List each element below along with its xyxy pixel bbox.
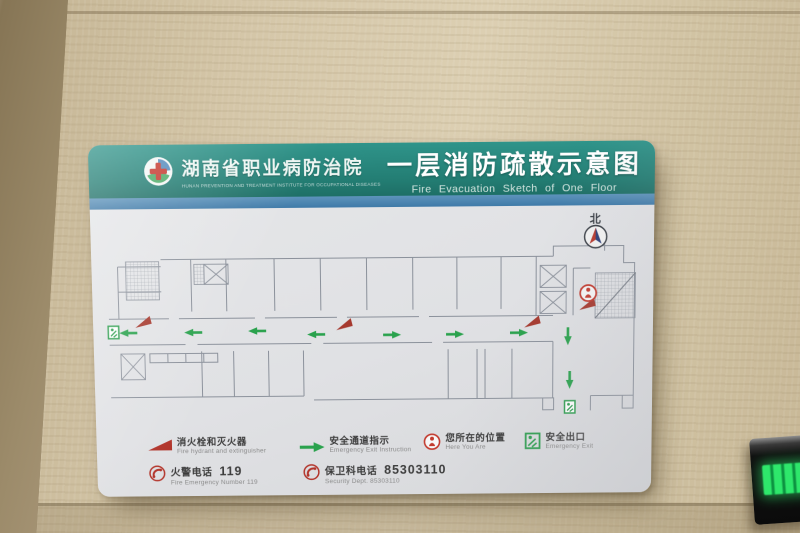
- phone-name: 保卫科电话: [325, 466, 378, 477]
- phone-icon: [149, 465, 166, 487]
- emergency-exit-icon: [525, 432, 541, 454]
- legend-label-cn: 安全通道指示: [329, 436, 411, 448]
- org-block: 湖南省职业病防治院 HUNAN PREVENTION AND TREATMENT…: [143, 153, 381, 189]
- evacuation-sign-board: 湖南省职业病防治院 HUNAN PREVENTION AND TREATMENT…: [88, 140, 655, 496]
- evacuation-arrow-icon: [564, 327, 572, 345]
- phone-label-en: Security Dept. 85303110: [325, 477, 447, 486]
- evacuation-arrow-icon: [383, 331, 401, 339]
- legend-label-en: Emergency Exit: [545, 443, 593, 452]
- exit-route-arrow-icon: [299, 439, 325, 457]
- evacuation-arrow-icon: [510, 329, 528, 337]
- you-are-here-icon: [424, 433, 441, 455]
- wall-corner-column: [0, 0, 70, 533]
- fire-hydrant-marker-icon: [334, 318, 352, 330]
- phone-name: 火警电话: [171, 468, 213, 479]
- legend-label-en: Fire hydrant and extinguisher: [177, 448, 266, 457]
- phone-icon: [303, 464, 320, 486]
- legend-item-security-phone: 保卫科电话85303110 Security Dept. 85303110: [303, 463, 446, 487]
- phone-label-en: Fire Emergency Number 119: [171, 479, 258, 488]
- north-label: 北: [590, 211, 601, 225]
- org-name-cn: 湖南省职业病防治院: [181, 153, 380, 181]
- emergency-exit-marker-icon: [108, 326, 119, 339]
- stairwell-hatch: [125, 258, 635, 323]
- evacuation-arrow-icon: [184, 329, 202, 337]
- legend-label-cn: 消火栓和灭火器: [177, 437, 266, 449]
- legend-item-hydrant: 消火栓和灭火器 Fire hydrant and extinguisher: [148, 437, 266, 457]
- legend-item-fire-phone: 火警电话119 Fire Emergency Number 119: [149, 464, 258, 488]
- wall-bottom-band: [0, 506, 800, 533]
- legend-item-exit: 安全出口 Emergency Exit: [525, 432, 594, 454]
- wall-tile-seam-top: [0, 11, 800, 14]
- phone-number: 85303110: [384, 463, 446, 477]
- evacuation-arrow-icon: [566, 371, 574, 389]
- legend-item-route: 安全通道指示 Emergency Exit Instruction: [299, 436, 412, 458]
- floor-plan-walls: [107, 240, 635, 414]
- north-compass-icon: 北: [585, 211, 607, 248]
- legend-label-en: Emergency Exit Instruction: [330, 447, 412, 456]
- phone-label-cn: 保卫科电话85303110: [325, 463, 447, 479]
- emergency-exit-marker-icon: [564, 401, 575, 413]
- sign-title-cn: 一层消防疏散示意图: [386, 144, 643, 183]
- fire-hydrant-icon: [148, 438, 172, 456]
- you-are-here-marker-icon: [580, 285, 596, 301]
- legend-label-en: Here You Are: [445, 444, 505, 453]
- legend-label-cn: 您所在的位置: [445, 433, 505, 445]
- phone-number: 119: [219, 464, 242, 478]
- evacuation-arrow-icon: [446, 330, 464, 338]
- org-name-en: HUNAN PREVENTION AND TREATMENT INSTITUTE…: [182, 181, 381, 188]
- evacuation-arrow-icon: [307, 331, 325, 339]
- hospital-logo-icon: [143, 156, 174, 187]
- led-room-sign: [749, 435, 800, 525]
- evacuation-arrow-icon: [248, 327, 266, 335]
- fire-hydrant-marker-icon: [522, 316, 540, 328]
- legend-label-cn: 安全出口: [545, 432, 593, 444]
- sign-title-en: Fire Evacuation Sketch of One Floor: [386, 181, 643, 195]
- phone-label-cn: 火警电话119: [170, 464, 257, 479]
- sign-header: 湖南省职业病防治院 HUNAN PREVENTION AND TREATMENT…: [88, 140, 655, 198]
- fire-hydrant-marker-icon: [133, 316, 152, 328]
- led-glow-text: [762, 462, 800, 495]
- floor-plan-area: 北: [104, 207, 639, 426]
- title-block: 一层消防疏散示意图 Fire Evacuation Sketch of One …: [386, 144, 643, 196]
- legend-item-here: 您所在的位置 Here You Are: [424, 433, 506, 455]
- evacuation-arrow-icon: [119, 329, 137, 337]
